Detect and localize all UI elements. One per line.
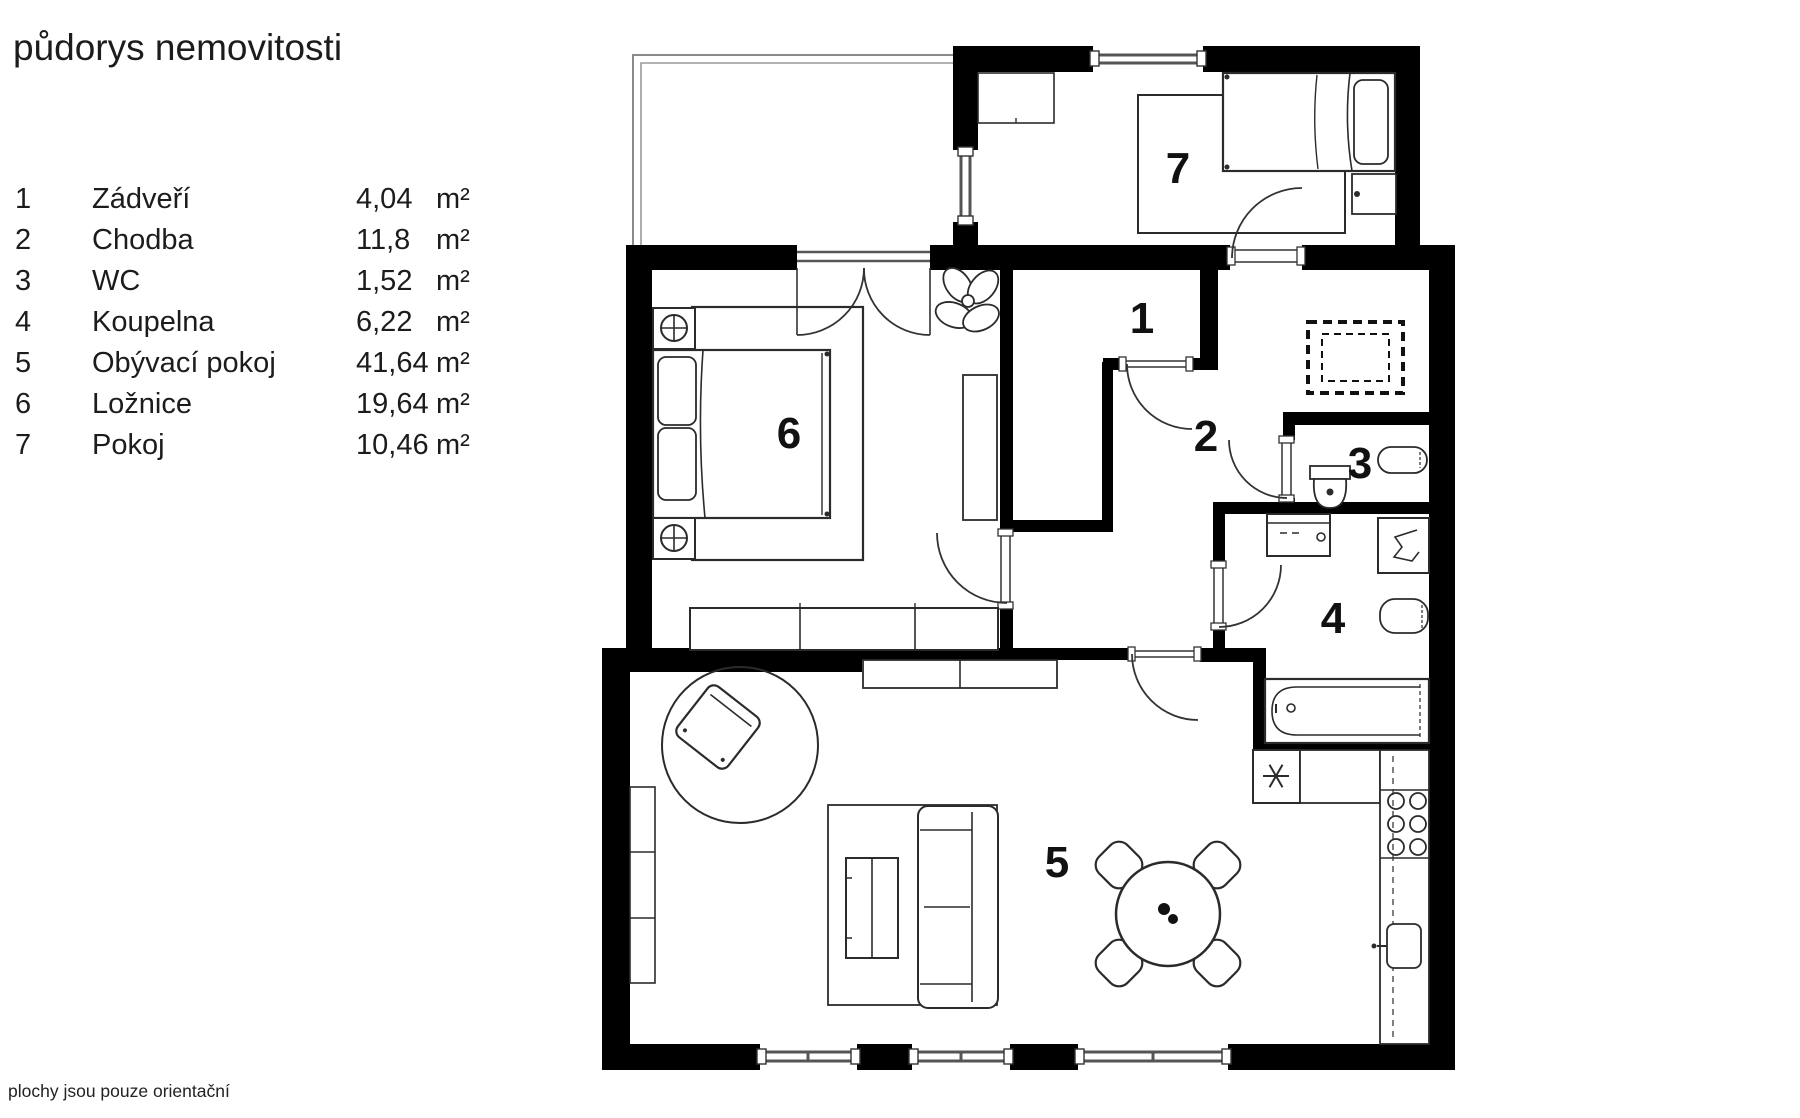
- nightstand-lamp: [653, 518, 695, 559]
- dresser: [963, 375, 997, 520]
- room6-door: [937, 529, 1013, 609]
- wc-door: [1229, 436, 1294, 502]
- room-label-2: 2: [1194, 412, 1218, 461]
- room1-door: [1119, 357, 1193, 429]
- nightstand: [1352, 174, 1396, 214]
- sideboard: [863, 660, 1057, 688]
- kitchen-sink-icon: [1372, 924, 1422, 968]
- sink-icon: [1380, 599, 1428, 633]
- room-label-4: 4: [1321, 594, 1346, 643]
- bathroom-door: [1211, 561, 1281, 630]
- floor-plan: 1 2 3 4 5 6 7: [0, 0, 1800, 1118]
- nightstand-lamp: [653, 308, 695, 349]
- washing-machine-icon: [1267, 514, 1330, 556]
- sofa: [918, 806, 998, 1008]
- armchair: [673, 682, 763, 772]
- window-icon: [953, 147, 978, 225]
- room-label-6: 6: [777, 409, 801, 458]
- bathtub-icon: [1265, 679, 1429, 743]
- bedroom6-furniture: [653, 263, 1004, 650]
- wall-shelf: [630, 787, 655, 983]
- bathroom-fixtures: [1265, 514, 1429, 743]
- room-label-7: 7: [1166, 144, 1190, 193]
- sink-icon: [1378, 447, 1427, 473]
- double-bed: [653, 350, 830, 518]
- walls: [602, 46, 1455, 1070]
- coffee-table: [846, 858, 898, 958]
- cabinet: [978, 73, 1054, 123]
- room-label-3: 3: [1348, 439, 1372, 488]
- window-icon: [909, 1044, 1013, 1070]
- toilet-icon: [1310, 466, 1350, 508]
- dashed-storage-box: [1308, 322, 1403, 393]
- shower-icon: [1378, 518, 1429, 573]
- living-room-door: [1128, 647, 1201, 720]
- single-bed: [1223, 73, 1395, 171]
- room-label-5: 5: [1045, 838, 1069, 887]
- balcony-outline: [633, 55, 953, 245]
- plant-icon: [932, 263, 1004, 337]
- room-label-1: 1: [1130, 294, 1154, 343]
- kitchen: [1253, 750, 1429, 1044]
- room7-door: [1227, 188, 1305, 270]
- living-room-furniture: [630, 660, 1245, 1008]
- dining-set: [1091, 837, 1246, 992]
- window-icon: [1090, 46, 1206, 72]
- window-icon: [757, 1044, 860, 1070]
- window-icon: [1075, 1044, 1231, 1070]
- kitchen-counter: [1300, 750, 1380, 803]
- fridge-icon: [1253, 750, 1300, 803]
- wardrobe: [690, 603, 998, 650]
- dining-table: [1116, 862, 1220, 966]
